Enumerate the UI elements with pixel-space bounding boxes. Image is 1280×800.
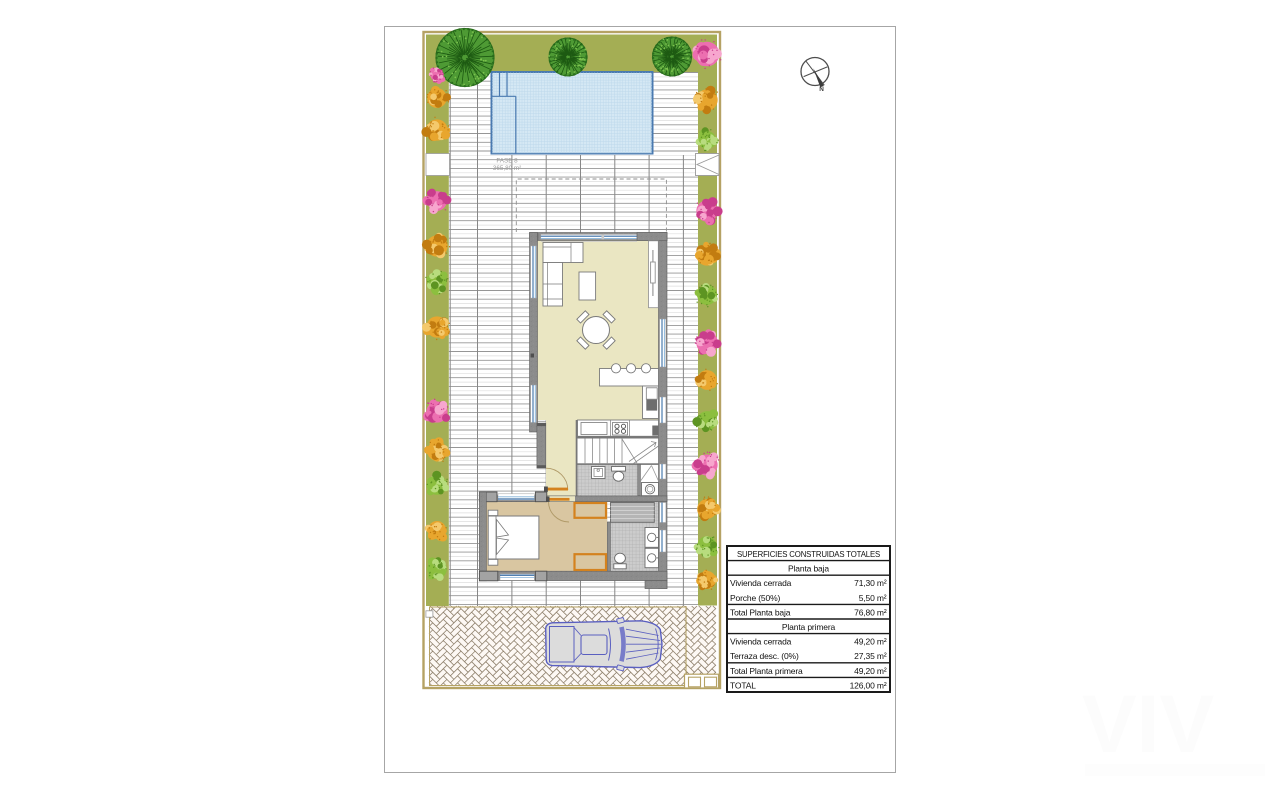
- svg-text:49,20 m²: 49,20 m²: [854, 666, 887, 676]
- svg-text:SUPERFICIES CONSTRUIDAS TOTALE: SUPERFICIES CONSTRUIDAS TOTALES: [737, 550, 880, 559]
- svg-text:76,80 m²: 76,80 m²: [854, 607, 887, 617]
- svg-text:126,00 m²: 126,00 m²: [850, 680, 887, 690]
- svg-text:N: N: [819, 86, 824, 93]
- svg-text:5,50 m²: 5,50 m²: [859, 593, 887, 603]
- svg-text:TOTAL: TOTAL: [730, 680, 756, 690]
- svg-text:27,35 m²: 27,35 m²: [854, 651, 887, 661]
- svg-text:71,30 m²: 71,30 m²: [854, 578, 887, 588]
- svg-text:FASE 8: FASE 8: [496, 158, 518, 165]
- svg-text:Total Planta baja: Total Planta baja: [730, 607, 791, 617]
- svg-text:VIV: VIV: [1082, 679, 1214, 770]
- svg-text:Vivienda cerrada: Vivienda cerrada: [730, 637, 792, 647]
- svg-text:49,20 m²: 49,20 m²: [854, 637, 887, 647]
- svg-text:Planta baja: Planta baja: [788, 564, 829, 574]
- svg-text:Planta primera: Planta primera: [782, 622, 836, 632]
- svg-text:Porche (50%): Porche (50%): [730, 593, 780, 603]
- svg-text:Terraza desc. (0%): Terraza desc. (0%): [730, 651, 799, 661]
- svg-text:Total Planta primera: Total Planta primera: [730, 666, 803, 676]
- svg-text:365,80 m²: 365,80 m²: [493, 165, 521, 172]
- svg-text:Vivienda cerrada: Vivienda cerrada: [730, 578, 792, 588]
